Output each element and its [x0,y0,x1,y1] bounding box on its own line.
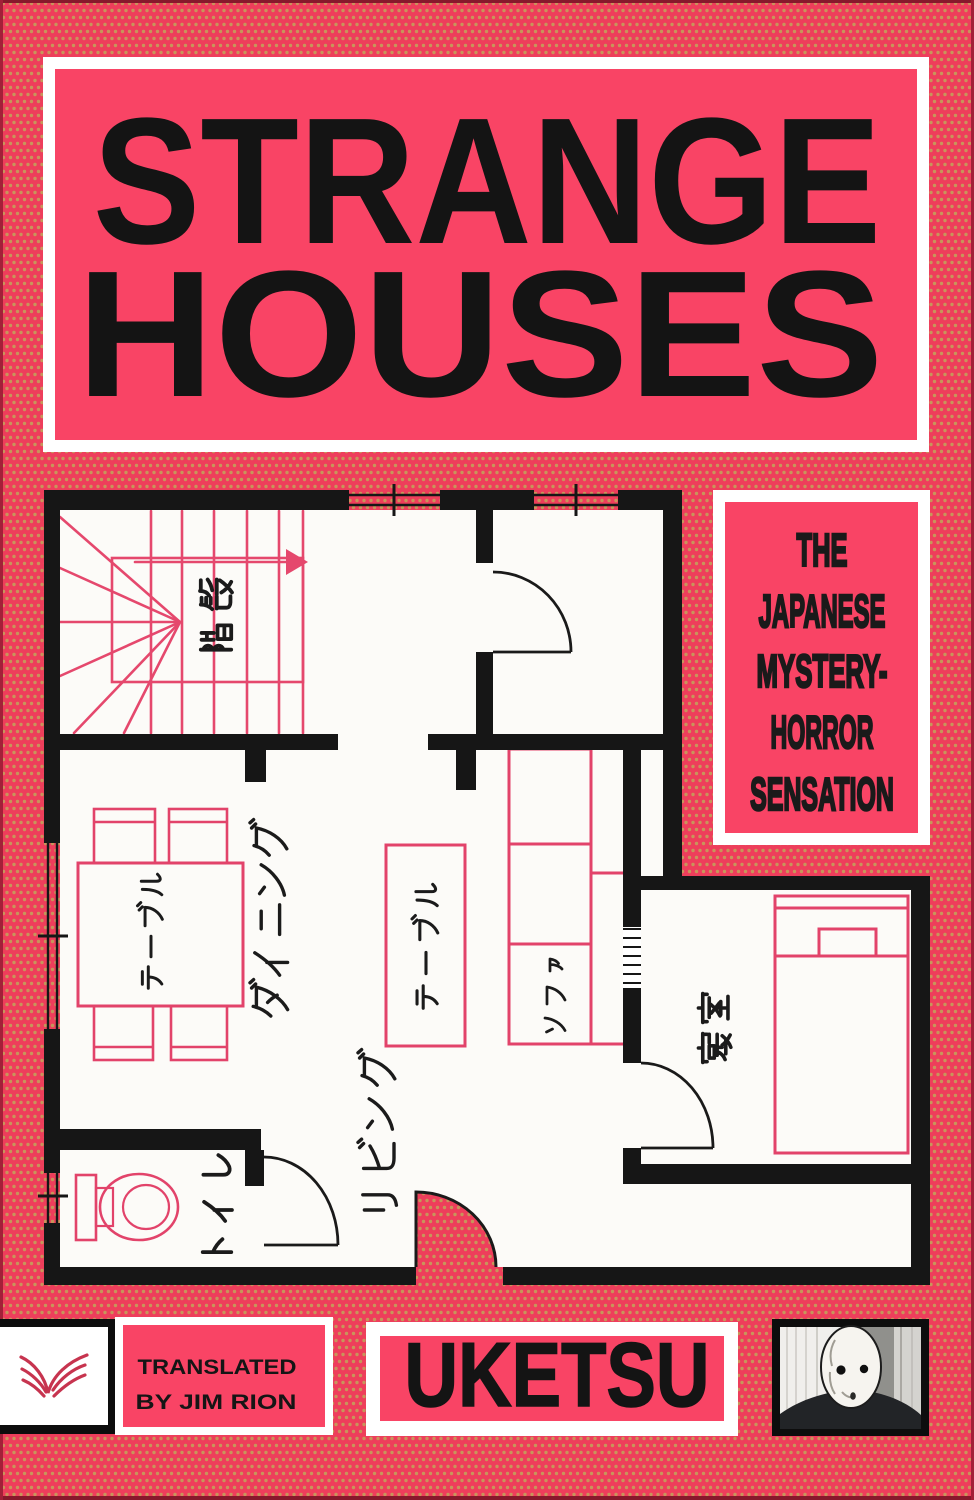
svg-text:SENSATION: SENSATION [750,768,894,820]
svg-text:TRANSLATED: TRANSLATED [138,1355,297,1379]
svg-text:THE: THE [797,524,848,576]
svg-text:BY JIM RION: BY JIM RION [136,1390,297,1414]
svg-text:HORROR: HORROR [771,706,874,758]
svg-text:MYSTERY-: MYSTERY- [757,645,888,697]
svg-text:JAPANESE: JAPANESE [759,586,886,637]
svg-text:HOUSES: HOUSES [76,234,883,435]
svg-text:UKETSU: UKETSU [405,1324,710,1426]
